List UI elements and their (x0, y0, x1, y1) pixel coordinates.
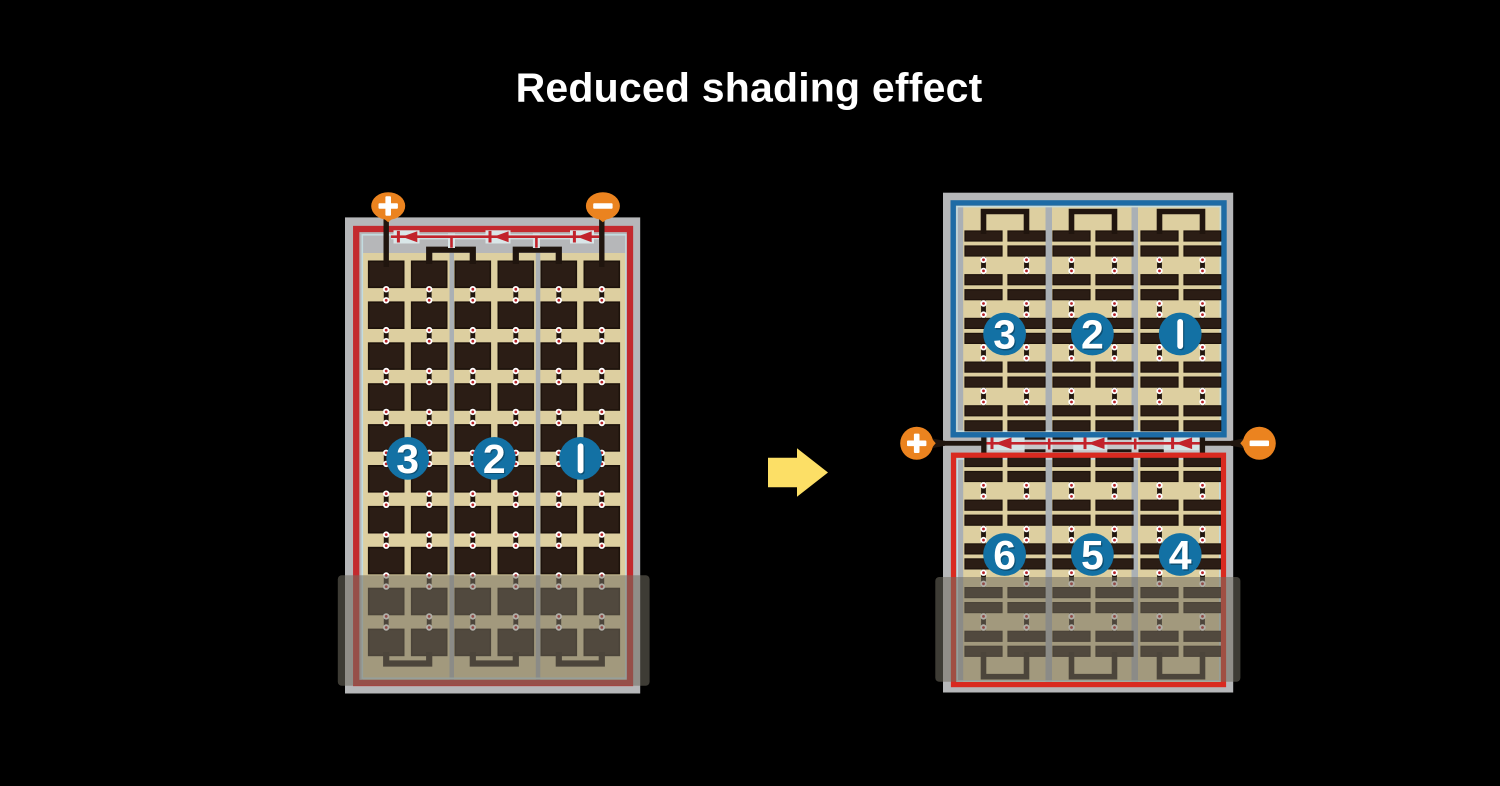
svg-text:2: 2 (1081, 312, 1104, 358)
svg-text:2: 2 (483, 436, 506, 482)
svg-text:5: 5 (1081, 532, 1104, 578)
svg-text:Reduced shading effect: Reduced shading effect (516, 65, 983, 111)
svg-text:3: 3 (396, 436, 419, 482)
svg-text:3: 3 (993, 312, 1016, 358)
svg-text:4: 4 (1169, 532, 1192, 578)
svg-text:6: 6 (993, 532, 1016, 578)
